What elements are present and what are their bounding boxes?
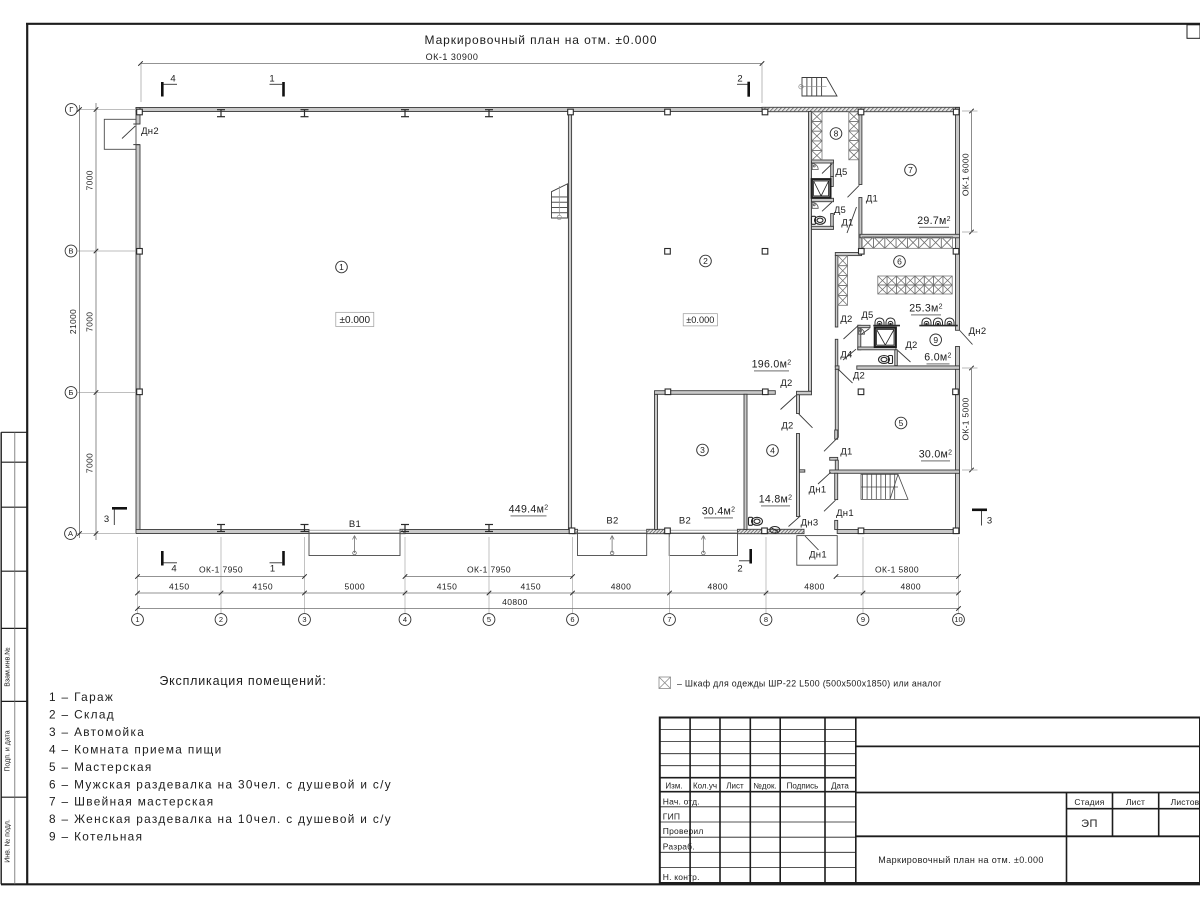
svg-text:5: 5 (899, 418, 904, 428)
svg-text:Нач. отд.: Нач. отд. (663, 797, 700, 807)
svg-text:Инв. № подл.: Инв. № подл. (5, 819, 12, 863)
svg-text:4800: 4800 (900, 582, 921, 592)
svg-text:5: 5 (487, 615, 491, 624)
svg-text:4800: 4800 (707, 582, 728, 592)
svg-text:5000: 5000 (344, 582, 365, 592)
svg-text:ОК-1 5800: ОК-1 5800 (875, 565, 919, 575)
svg-text:Стадия: Стадия (1074, 797, 1104, 807)
svg-text:196.0м2: 196.0м2 (752, 359, 792, 371)
svg-text:4150: 4150 (437, 582, 458, 592)
svg-text:№док.: №док. (753, 782, 776, 791)
svg-text:4 – Комната приема пищи: 4 – Комната приема пищи (49, 742, 223, 756)
svg-text:10: 10 (954, 615, 962, 624)
svg-text:7000: 7000 (85, 453, 95, 473)
svg-text:Кол.уч: Кол.уч (693, 782, 717, 791)
svg-text:Лист: Лист (726, 782, 744, 791)
svg-text:4150: 4150 (252, 582, 273, 592)
svg-text:Проверил: Проверил (663, 826, 704, 836)
svg-text:14.8м2: 14.8м2 (759, 494, 793, 506)
svg-text:2 – Склад: 2 – Склад (49, 707, 115, 721)
svg-text:3: 3 (987, 516, 992, 527)
svg-text:8: 8 (764, 615, 768, 624)
svg-text:1: 1 (270, 564, 275, 575)
svg-text:Дн2: Дн2 (969, 326, 987, 337)
svg-text:Маркировочный план на отм. ±0.: Маркировочный план на отм. ±0.000 (425, 33, 658, 47)
svg-text:Г: Г (69, 105, 73, 114)
svg-text:Д5: Д5 (834, 205, 846, 216)
svg-text:30.0м2: 30.0м2 (919, 449, 953, 461)
svg-text:7000: 7000 (85, 312, 95, 332)
svg-text:– Шкаф для одежды ШР-22 L500 (: – Шкаф для одежды ШР-22 L500 (500x500x18… (677, 679, 942, 689)
svg-text:Д2: Д2 (780, 378, 792, 389)
svg-text:7: 7 (667, 615, 671, 624)
svg-text:Д2: Д2 (840, 314, 852, 325)
svg-text:6: 6 (897, 257, 902, 267)
svg-text:449.4м2: 449.4м2 (509, 504, 549, 516)
svg-text:±0.000: ±0.000 (340, 315, 371, 326)
svg-text:4150: 4150 (169, 582, 190, 592)
svg-text:7000: 7000 (85, 170, 95, 190)
svg-text:1: 1 (135, 615, 139, 624)
svg-text:2: 2 (219, 615, 223, 624)
svg-text:5 – Мастерская: 5 – Мастерская (49, 760, 153, 774)
svg-text:Д2: Д2 (781, 421, 793, 432)
svg-text:Листов: Листов (1171, 797, 1200, 807)
svg-text:Маркировочный план на отм. ±0.: Маркировочный план на отм. ±0.000 (878, 855, 1044, 865)
svg-text:Д1: Д1 (841, 218, 853, 229)
svg-text:7: 7 (908, 165, 913, 175)
svg-text:В: В (68, 247, 73, 256)
svg-text:2: 2 (737, 74, 742, 85)
svg-text:В2: В2 (606, 516, 618, 527)
svg-text:Подпись: Подпись (787, 782, 819, 791)
svg-text:1: 1 (269, 74, 274, 85)
svg-text:ОК-1 6000: ОК-1 6000 (960, 153, 970, 196)
svg-text:4: 4 (403, 615, 407, 624)
svg-text:8: 8 (834, 129, 839, 139)
svg-text:ОК-1 30900: ОК-1 30900 (426, 52, 479, 62)
svg-text:4150: 4150 (520, 582, 541, 592)
svg-text:Дн2: Дн2 (141, 126, 159, 137)
svg-text:30.4м2: 30.4м2 (702, 506, 736, 518)
svg-text:4: 4 (770, 446, 775, 456)
svg-text:ГИП: ГИП (663, 812, 680, 822)
svg-text:В1: В1 (349, 519, 361, 530)
svg-text:А: А (68, 529, 73, 538)
svg-text:Д5: Д5 (835, 167, 847, 178)
svg-text:7 – Швейная мастерская: 7 – Швейная мастерская (49, 795, 214, 809)
svg-text:9: 9 (861, 615, 865, 624)
svg-text:Д2: Д2 (905, 340, 917, 351)
svg-text:±0.000: ±0.000 (686, 315, 714, 325)
svg-text:4800: 4800 (804, 582, 825, 592)
svg-text:2: 2 (703, 256, 708, 266)
svg-text:29.7м2: 29.7м2 (917, 215, 951, 227)
svg-text:3 – Автомойка: 3 – Автомойка (49, 725, 145, 739)
svg-text:Изм.: Изм. (665, 782, 682, 791)
svg-text:Дн1: Дн1 (809, 550, 827, 561)
svg-text:Подп. и дата: Подп. и дата (5, 730, 12, 771)
svg-text:25.3м2: 25.3м2 (909, 303, 943, 315)
svg-text:2: 2 (737, 564, 742, 575)
svg-text:Взам.инв.№: Взам.инв.№ (5, 647, 12, 686)
svg-text:3: 3 (302, 615, 306, 624)
svg-text:В2: В2 (679, 516, 691, 527)
svg-text:Дата: Дата (831, 782, 849, 791)
svg-text:8 – Женская раздевалка на 10че: 8 – Женская раздевалка на 10чел. с душев… (49, 812, 392, 826)
svg-text:6: 6 (570, 615, 574, 624)
svg-text:Н. контр.: Н. контр. (663, 872, 700, 882)
svg-text:9 – Котельная: 9 – Котельная (49, 830, 143, 844)
svg-text:ОК-1 7950: ОК-1 7950 (199, 565, 243, 575)
svg-text:Д4: Д4 (840, 350, 852, 361)
svg-text:4: 4 (170, 74, 175, 85)
svg-text:21000: 21000 (68, 309, 78, 334)
svg-text:40800: 40800 (502, 597, 528, 607)
svg-text:Д5: Д5 (861, 310, 873, 321)
svg-text:6 – Мужская раздевалка на 30че: 6 – Мужская раздевалка на 30чел. с душев… (49, 777, 392, 791)
svg-text:1: 1 (339, 262, 344, 272)
svg-text:Экспликация помещений:: Экспликация помещений: (159, 674, 326, 688)
svg-text:Д1: Д1 (866, 194, 878, 205)
svg-text:Д1: Д1 (840, 447, 852, 458)
svg-text:Лист: Лист (1126, 797, 1145, 807)
svg-text:Дн1: Дн1 (836, 508, 854, 519)
svg-text:3: 3 (700, 445, 705, 455)
svg-text:Д2: Д2 (853, 371, 865, 382)
svg-text:Дн3: Дн3 (801, 518, 819, 529)
svg-text:Дн1: Дн1 (809, 485, 827, 496)
svg-text:ОК-1 7950: ОК-1 7950 (467, 565, 511, 575)
svg-text:Разраб.: Разраб. (663, 842, 695, 852)
svg-text:ЭП: ЭП (1081, 818, 1098, 830)
svg-text:9: 9 (933, 335, 938, 345)
svg-text:1 – Гараж: 1 – Гараж (49, 690, 114, 704)
svg-text:4: 4 (171, 564, 176, 575)
svg-text:Б: Б (69, 388, 74, 397)
svg-text:4800: 4800 (611, 582, 632, 592)
svg-text:ОК-1 5000: ОК-1 5000 (960, 397, 970, 440)
svg-text:3: 3 (104, 514, 109, 525)
